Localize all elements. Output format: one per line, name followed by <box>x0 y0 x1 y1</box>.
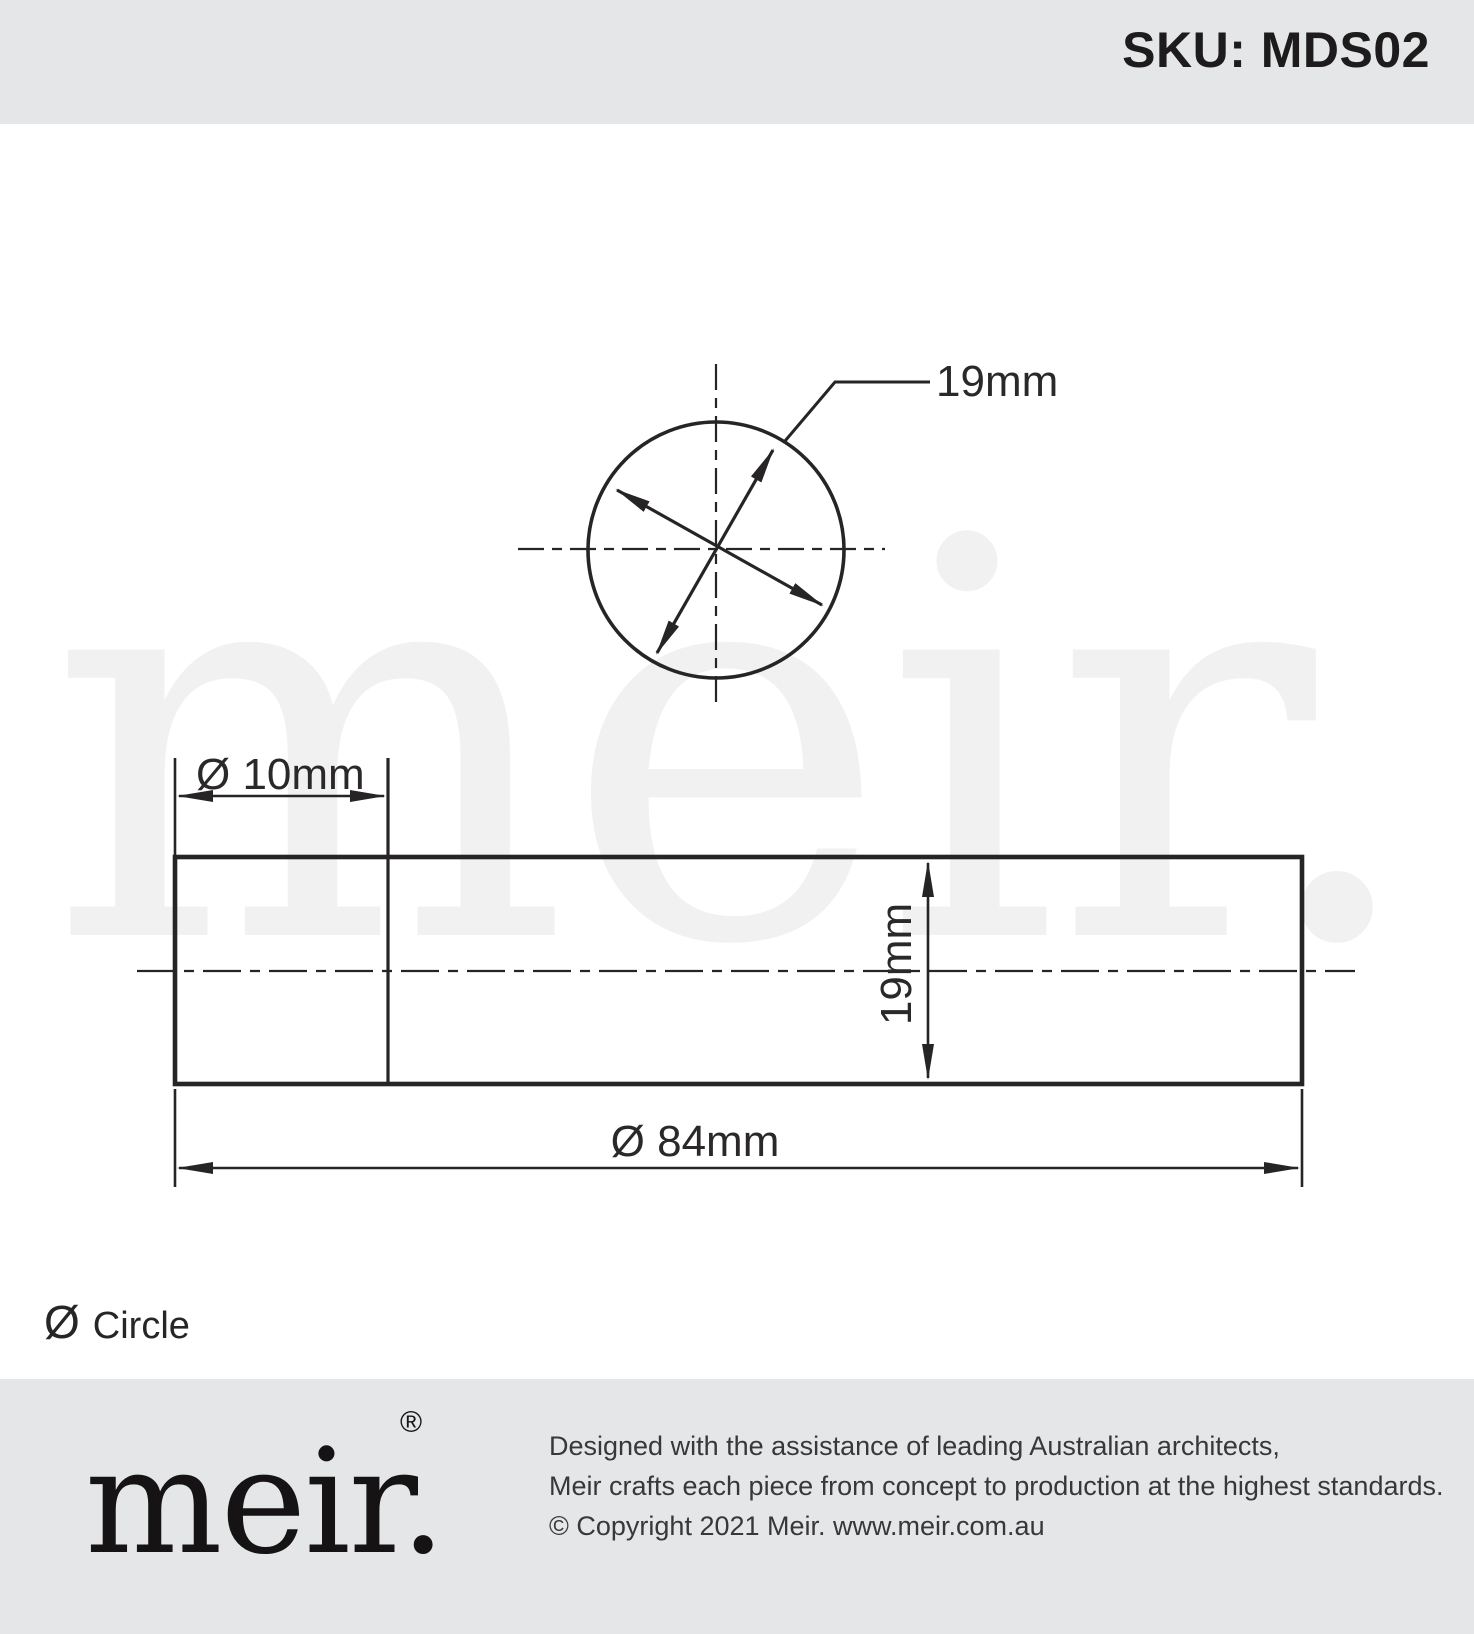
legend-label: Circle <box>93 1305 190 1347</box>
legend: Ø Circle <box>44 1299 190 1347</box>
brand-logo: meir. <box>85 1430 444 1575</box>
body-diameter-label: 19mm <box>874 903 920 1025</box>
diameter-leader-line <box>785 382 930 441</box>
diameter-symbol-icon: Ø <box>44 1299 80 1345</box>
overall-length-label: Ø 84mm <box>611 1119 780 1165</box>
spec-sheet-page: SKU: MDS02 meir. <box>0 0 1474 1634</box>
footer-line: Meir crafts each piece from concept to p… <box>549 1466 1443 1506</box>
footer-line: © Copyright 2021 Meir. www.meir.com.au <box>549 1506 1443 1546</box>
registered-trademark-icon: ® <box>400 1406 422 1440</box>
end-view-diameter-label: 19mm <box>936 359 1058 405</box>
footer-text-block: Designed with the assistance of leading … <box>549 1426 1443 1546</box>
technical-drawing <box>0 0 1474 1634</box>
footer-line: Designed with the assistance of leading … <box>549 1426 1443 1466</box>
diameter-arrow-shallow <box>617 490 822 605</box>
step-diameter-label: Ø 10mm <box>196 752 365 798</box>
